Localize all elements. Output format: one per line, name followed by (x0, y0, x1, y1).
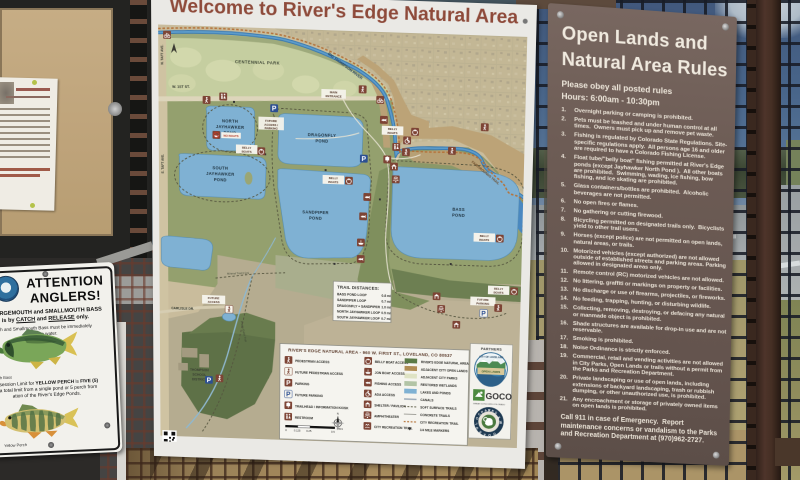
svg-text:OPEN LANDS: OPEN LANDS (481, 369, 500, 373)
svg-text:POND: POND (452, 213, 465, 218)
svg-text:BOATS: BOATS (479, 238, 489, 242)
svg-text:0.7 mi: 0.7 mi (381, 300, 390, 304)
svg-text:BOATS: BOATS (494, 291, 504, 295)
svg-text:Mineral Trail 0.5mi: Mineral Trail 0.5mi (227, 271, 250, 276)
svg-text:0.25: 0.25 (306, 429, 312, 433)
svg-text:SANDPIPER: SANDPIPER (302, 209, 328, 215)
svg-text:NORTH: NORTH (222, 118, 238, 123)
svg-text:PARKING: PARKING (476, 302, 490, 306)
svg-text:GOCO: GOCO (485, 391, 512, 401)
svg-text:ADA ACCESS: ADA ACCESS (374, 393, 395, 398)
svg-text:W. 1ST ST.: W. 1ST ST. (172, 85, 190, 89)
svg-text:THOMPSON: THOMPSON (190, 368, 209, 372)
svg-text:ACCESS: ACCESS (208, 300, 220, 304)
svg-text:0.7 mi: 0.7 mi (381, 317, 390, 321)
svg-text:0.5 mi: 0.5 mi (381, 311, 390, 315)
svg-text:BOATS: BOATS (328, 180, 338, 184)
svg-text:BASS: BASS (452, 207, 465, 212)
svg-text:PARKING: PARKING (295, 382, 310, 386)
svg-text:0.8 mi: 0.8 mi (381, 294, 390, 298)
svg-text:CARLISLE DR.: CARLISLE DR. (171, 306, 194, 311)
svg-text:CANALS: CANALS (420, 398, 434, 402)
svg-text:SOUTH: SOUTH (212, 165, 228, 170)
svg-text:ENTRANCE: ENTRANCE (325, 94, 341, 99)
svg-text:0.5: 0.5 (331, 430, 335, 434)
svg-text:PARTNERS: PARTNERS (481, 347, 502, 352)
svg-text:0.125: 0.125 (294, 429, 301, 433)
svg-text:NO BOATS: NO BOATS (223, 134, 238, 138)
svg-text:PARKING: PARKING (265, 126, 279, 130)
svg-text:E. TAFT AVE.: E. TAFT AVE. (161, 154, 165, 174)
svg-text:JAYHAWKER: JAYHAWKER (216, 124, 244, 130)
svg-text:SCHOOL: SCHOOL (192, 373, 206, 377)
svg-text:BOATS: BOATS (387, 131, 397, 135)
svg-text:BOATS: BOATS (242, 150, 252, 154)
svg-text:JAYHAWKER: JAYHAWKER (206, 171, 234, 177)
svg-text:DRAGONFLY: DRAGONFLY (308, 132, 336, 138)
svg-text:1.0 mi: 1.0 mi (381, 305, 390, 309)
svg-text:POND: POND (214, 177, 227, 182)
svg-text:POND: POND (315, 138, 328, 143)
svg-text:RESTROOM: RESTROOM (295, 416, 313, 420)
svg-text:N. TAFT AVE.: N. TAFT AVE. (160, 45, 164, 65)
svg-text:POND: POND (309, 215, 322, 220)
svg-text:N: N (337, 412, 339, 416)
